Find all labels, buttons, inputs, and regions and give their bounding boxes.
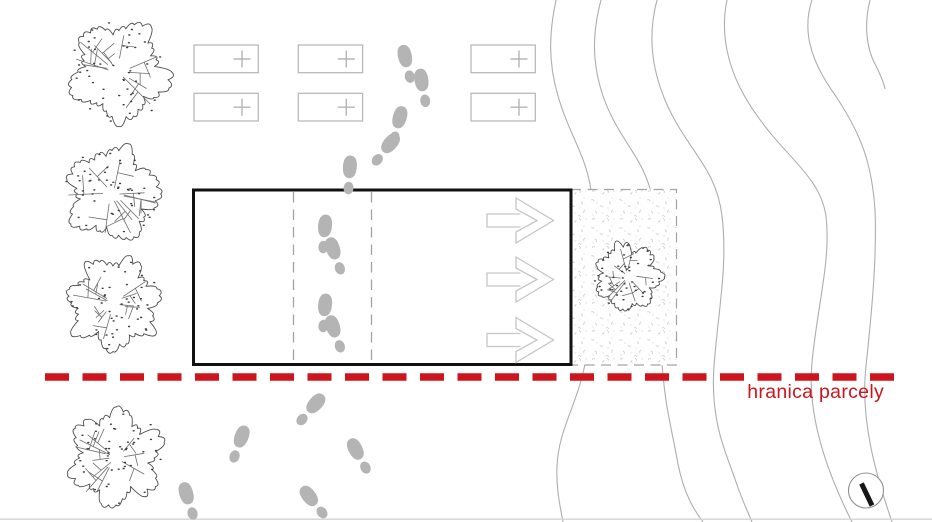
parcel-boundary-label: hranica parcely: [747, 381, 884, 403]
building-outline: [194, 190, 572, 365]
tree-symbol: [66, 256, 161, 354]
footprint-icon: [368, 130, 404, 169]
parking-spaces: [194, 45, 535, 121]
contour-line: [724, 0, 852, 522]
footprint-icon: [176, 480, 200, 521]
tree-symbol: [66, 143, 162, 240]
parking-space: [194, 93, 258, 121]
footprint-icon: [297, 483, 331, 522]
footprint-icon: [396, 44, 418, 85]
footprint-icon: [344, 436, 374, 477]
parking-space: [471, 93, 535, 121]
building-footprint: [194, 190, 572, 365]
parking-space: [471, 45, 535, 73]
parking-space: [298, 93, 362, 121]
tree-symbol: [67, 406, 164, 508]
parking-space: [298, 45, 362, 73]
site-plan: hranica parcely: [0, 0, 932, 522]
contour-line: [867, 0, 885, 89]
north-indicator: [849, 473, 884, 508]
tree-symbol: [68, 22, 173, 126]
footprint-icon: [225, 423, 252, 464]
footprint-icon: [292, 390, 328, 428]
site-plan-drawing: hranica parcely: [0, 0, 932, 522]
parking-space: [194, 45, 258, 73]
footprint-icon: [413, 68, 433, 108]
